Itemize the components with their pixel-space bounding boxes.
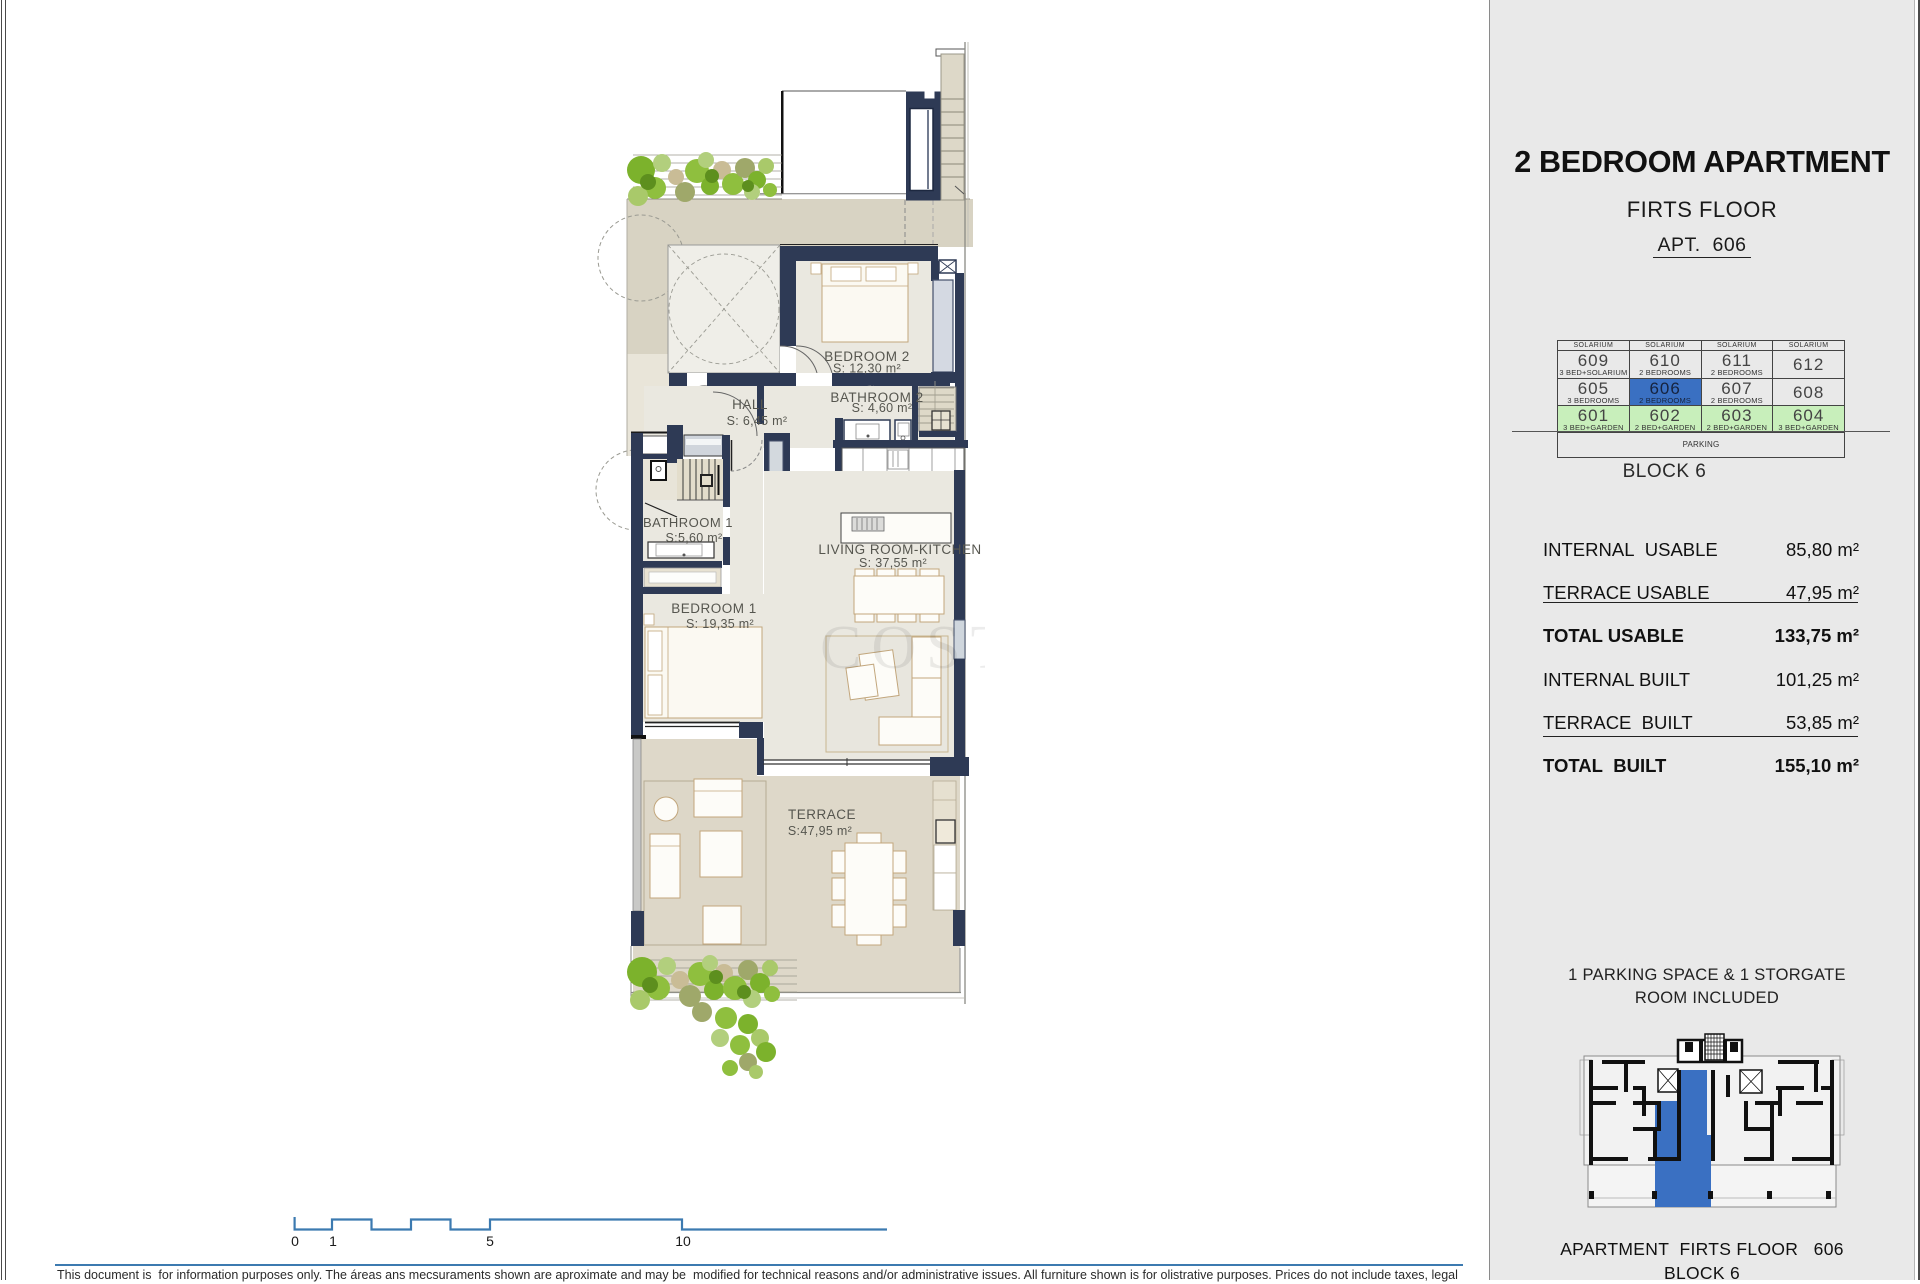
svg-text:S: 4,60 m²: S: 4,60 m² <box>852 401 913 415</box>
svg-text:S: 6,45 m²: S: 6,45 m² <box>727 414 788 428</box>
svg-text:S:5,60 m²: S:5,60 m² <box>666 531 723 545</box>
svg-text:10: 10 <box>675 1233 691 1249</box>
svg-text:TERRACE: TERRACE <box>788 807 856 822</box>
svg-text:5: 5 <box>486 1233 494 1249</box>
svg-text:0: 0 <box>291 1233 299 1249</box>
svg-text:BEDROOM 1: BEDROOM 1 <box>671 601 757 616</box>
svg-text:1: 1 <box>329 1233 337 1249</box>
svg-text:S: 12,30 m²: S: 12,30 m² <box>833 362 901 376</box>
svg-text:HALL: HALL <box>732 397 768 412</box>
svg-text:BATHROOM 1: BATHROOM 1 <box>643 515 733 530</box>
svg-text:S:47,95 m²: S:47,95 m² <box>788 824 852 838</box>
svg-text:COST: COST <box>820 614 1018 682</box>
svg-text:S: 37,55 m²: S: 37,55 m² <box>859 556 927 570</box>
svg-text:S: 19,35 m²: S: 19,35 m² <box>686 617 754 631</box>
svg-text:LIVING ROOM-KITCHEN: LIVING ROOM-KITCHEN <box>818 542 981 557</box>
